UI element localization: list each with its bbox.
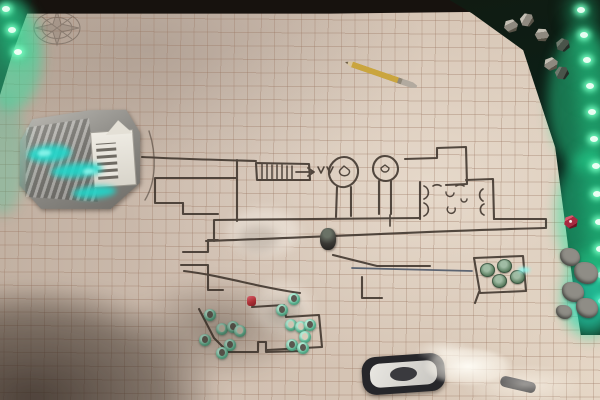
map-left-room (155, 160, 237, 221)
map-topright-corridor (405, 147, 467, 185)
green-token (497, 259, 512, 273)
map-stair-hatches (262, 164, 292, 180)
die-pip (569, 220, 572, 223)
led-light (592, 163, 600, 169)
map-hook (362, 277, 382, 298)
right-edge-mini (574, 262, 598, 284)
red-token (247, 296, 256, 306)
right-edge-mini (576, 298, 598, 318)
led-light (577, 7, 585, 13)
led-light (580, 32, 588, 38)
terrain-windows (96, 142, 118, 179)
miniature (304, 319, 316, 331)
green-token (492, 274, 507, 288)
miniature (276, 304, 288, 316)
led-light (590, 136, 598, 142)
lone-mini (288, 293, 300, 305)
map-cell-glyphs (446, 192, 467, 213)
map-chamber-a (329, 157, 358, 187)
led-light (14, 49, 22, 55)
led-light (588, 109, 596, 115)
map-arrow (296, 168, 314, 176)
led-light (595, 219, 600, 225)
map-blue-line (352, 268, 472, 271)
map-lower-left-line (184, 271, 300, 293)
miniature (199, 334, 211, 346)
map-lower-corridor (333, 255, 430, 266)
map-top-corridor (142, 157, 256, 161)
right-edge-mini (556, 305, 572, 319)
led-light (593, 191, 600, 197)
map-chamber-a-neck (336, 187, 351, 217)
glasses-case (361, 352, 446, 396)
led-light (2, 6, 10, 12)
led-light (586, 83, 594, 89)
dark-mini (320, 228, 336, 250)
map-chamber-b (373, 156, 398, 181)
teal-glint (518, 267, 530, 273)
map-chamber-b-rune (381, 165, 389, 172)
green-token (480, 263, 495, 277)
led-light (583, 57, 591, 63)
ruined-terrain-piece (15, 107, 146, 215)
miniature (204, 309, 216, 321)
tabletop-scene: Overhead photograph of a tabletop RPG se… (0, 0, 600, 400)
map-chamber-b-neck (379, 181, 391, 214)
led-light (8, 27, 16, 33)
miniature (297, 342, 309, 354)
map-squiggle (318, 167, 333, 173)
map-long-corridor-bottom (206, 228, 545, 241)
led-light (596, 246, 600, 252)
map-chamber-a-rune (340, 166, 350, 176)
miniature (234, 325, 246, 337)
miniature (216, 347, 228, 359)
map-wire-curve (145, 131, 154, 200)
